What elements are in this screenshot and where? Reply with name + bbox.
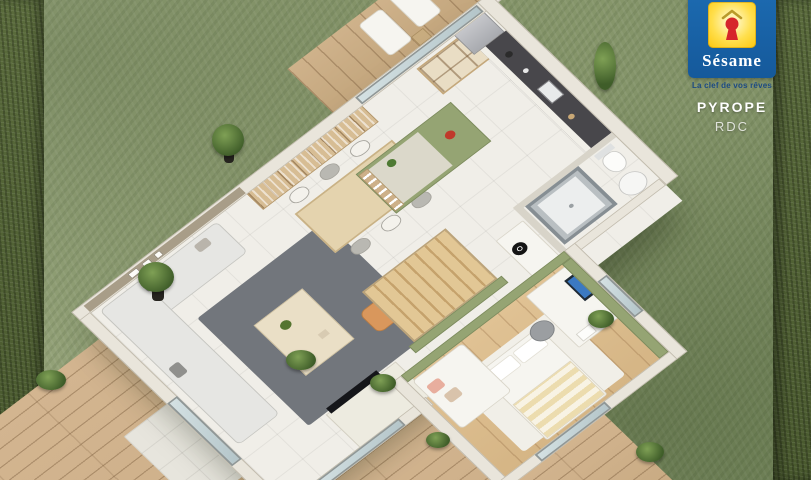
brand-tagline: La clef de vos rêves <box>688 81 776 90</box>
grass-tuft <box>370 374 396 392</box>
potted-plant <box>138 262 174 292</box>
grass-tuft <box>286 350 316 370</box>
grass-tuft <box>36 370 66 390</box>
floor-level-label: RDC <box>688 119 776 134</box>
floor-plan-render: MAISONS Sésame La clef de vos rêves PYRO… <box>0 0 811 480</box>
fern <box>588 310 614 328</box>
keyhole-house-icon <box>708 2 756 48</box>
grass-tuft <box>426 432 450 448</box>
brand-name: Sésame <box>688 51 776 71</box>
model-name: PYROPE <box>688 99 776 115</box>
indoor-plant <box>212 124 244 156</box>
brand-logo-card: MAISONS Sésame <box>688 0 776 78</box>
tall-shrub <box>594 42 616 90</box>
hedge-right <box>773 0 811 480</box>
brand-block: MAISONS Sésame La clef de vos rêves PYRO… <box>688 0 776 134</box>
fern <box>636 442 664 462</box>
